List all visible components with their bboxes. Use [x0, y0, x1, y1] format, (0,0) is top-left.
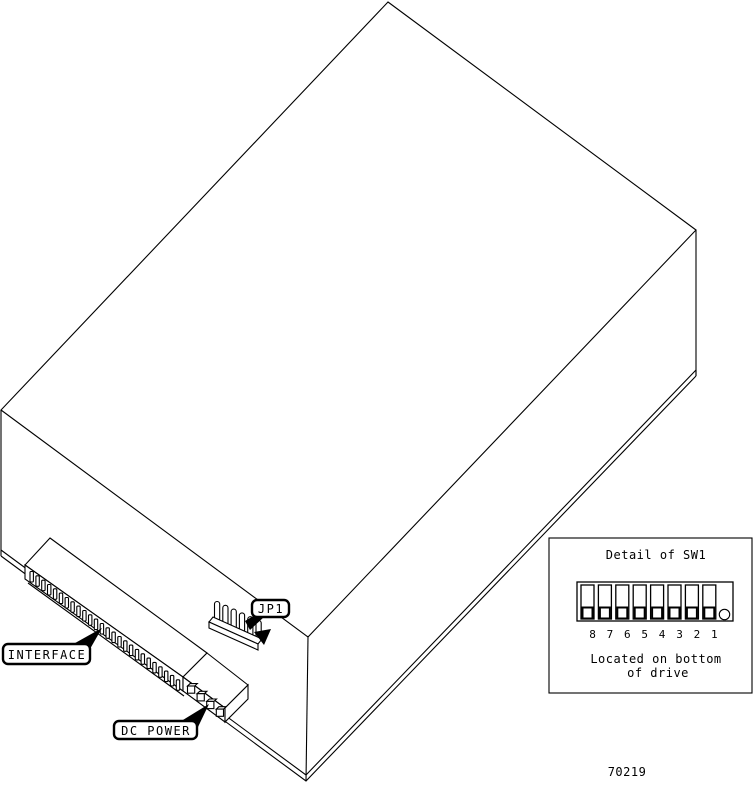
interface-contact-pin: [106, 628, 109, 639]
interface-contact-pin: [53, 589, 56, 600]
interface-contact-pin: [77, 606, 80, 617]
interface-contact-pin: [65, 598, 68, 609]
jp1-label-text: JP1: [258, 602, 284, 616]
dc-power-pin: [216, 709, 223, 716]
interface-contact-pin: [89, 615, 92, 626]
drive-line-drawing: INTERFACE DC POWER JP1 Detail of SW1 876…: [0, 0, 755, 787]
drive-front-vertical-edge: [306, 637, 308, 781]
interface-contact-pin: [141, 654, 144, 665]
callout-interface: INTERFACE: [3, 628, 102, 664]
dip-switch-number: 2: [694, 628, 701, 641]
dip-switch-rocker: [617, 608, 627, 619]
dip-switch-rocker: [635, 608, 645, 619]
interface-contact-pin: [159, 667, 162, 678]
interface-contact-pin: [83, 611, 86, 622]
dip-switch-rocker: [600, 608, 610, 619]
callout-dc-power: DC POWER: [114, 704, 209, 739]
technical-diagram-page: INTERFACE DC POWER JP1 Detail of SW1 876…: [0, 0, 755, 787]
interface-contact-pin: [71, 602, 74, 613]
interface-contact-pin: [170, 675, 173, 686]
interface-contact-pin: [112, 632, 115, 643]
dip-switch-number: 6: [624, 628, 631, 641]
interface-contact-pin: [59, 593, 62, 604]
interface-contact-pin: [129, 645, 132, 656]
detail-note-line-2: of drive: [627, 666, 689, 680]
dip-switch-rocker: [670, 608, 680, 619]
figure-part-number: 70219: [608, 765, 647, 779]
interface-contact-pin: [165, 671, 168, 682]
detail-note-line-1: Located on bottom: [590, 652, 721, 666]
detail-panel-title: Detail of SW1: [606, 548, 706, 562]
interface-contact-pin: [147, 658, 150, 669]
dc-power-pin: [188, 686, 195, 693]
dip-switch-number: 3: [676, 628, 683, 641]
interface-contact-pin: [36, 576, 39, 587]
dip-switch-rocker: [583, 608, 593, 619]
dip-switch-rocker: [652, 608, 662, 619]
interface-contact-pin: [118, 637, 121, 648]
dip-switch-number: 4: [659, 628, 666, 641]
interface-contact-pin: [94, 619, 97, 630]
dip-switch-number: 8: [589, 628, 596, 641]
interface-label-text: INTERFACE: [8, 648, 87, 662]
dip-switch-rocker: [687, 608, 697, 619]
interface-contact-pin: [48, 585, 51, 596]
dip-switch-number: 1: [711, 628, 718, 641]
dip-switch-rocker: [704, 608, 714, 619]
interface-contact-pin: [30, 572, 33, 583]
sw1-detail-panel: Detail of SW1 87654321 Located on bottom…: [549, 538, 752, 693]
interface-connector-housing: [25, 538, 207, 696]
dc-power-pin: [197, 694, 204, 701]
dip-switch-number: 5: [641, 628, 648, 641]
interface-contact-pin: [135, 649, 138, 660]
dip-switch-number-row: 87654321: [589, 628, 717, 641]
interface-contact-pin: [153, 662, 156, 673]
interface-contact-pin: [176, 680, 179, 691]
dip-switch-number: 7: [607, 628, 614, 641]
interface-contact-pin: [124, 641, 127, 652]
interface-contact-pin: [42, 580, 45, 591]
drive-top-face: [1, 2, 696, 637]
dc-power-label-text: DC POWER: [121, 724, 191, 738]
